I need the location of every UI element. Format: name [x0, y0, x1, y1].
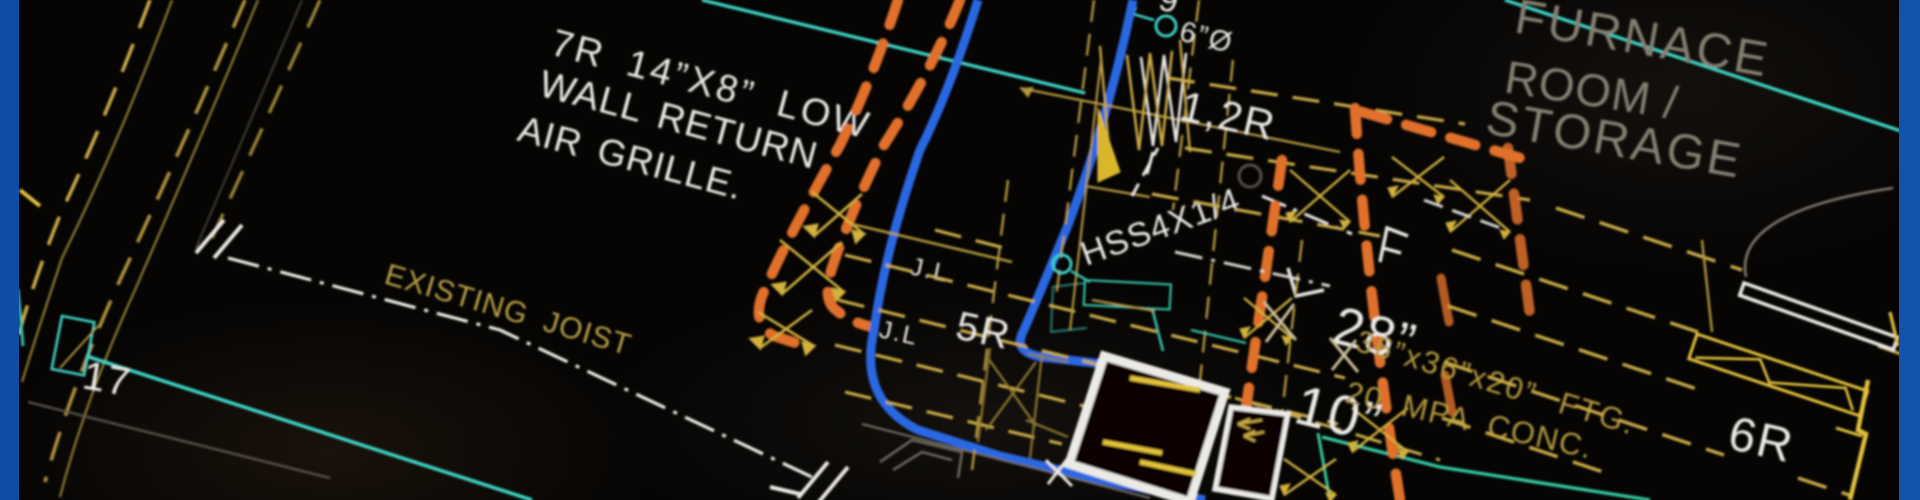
svg-text:17: 17 [79, 354, 134, 406]
